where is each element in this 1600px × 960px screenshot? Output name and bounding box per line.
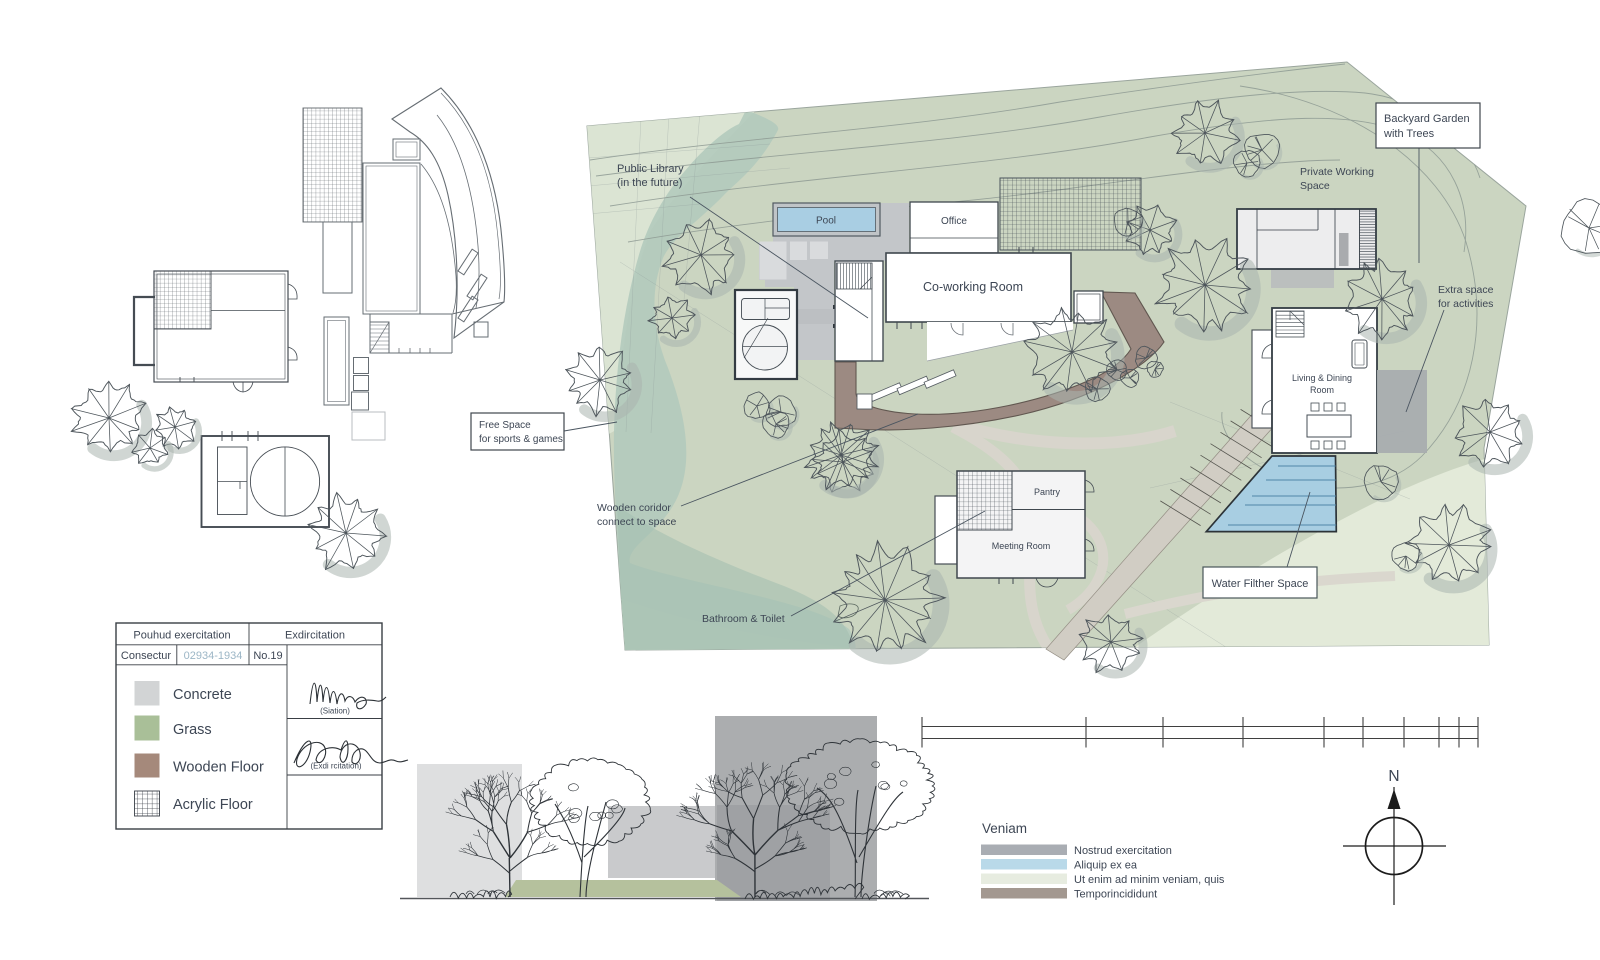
svg-text:Office: Office bbox=[941, 216, 967, 227]
svg-text:N: N bbox=[1388, 768, 1399, 785]
svg-text:Co-working Room: Co-working Room bbox=[923, 280, 1023, 294]
svg-text:Meeting Room: Meeting Room bbox=[992, 541, 1051, 551]
svg-text:Nostrud exercitation: Nostrud exercitation bbox=[1074, 845, 1172, 857]
svg-text:02934-1934: 02934-1934 bbox=[184, 650, 243, 662]
svg-text:No.19: No.19 bbox=[253, 650, 282, 662]
svg-text:Free Space: Free Space bbox=[479, 420, 531, 431]
svg-text:Concrete: Concrete bbox=[173, 687, 232, 703]
svg-text:Aliquip ex ea: Aliquip ex ea bbox=[1074, 860, 1138, 872]
svg-text:Consectur: Consectur bbox=[121, 650, 171, 662]
svg-text:Pouhud exercitation: Pouhud exercitation bbox=[133, 630, 230, 642]
svg-text:Wooden Floor: Wooden Floor bbox=[173, 760, 264, 776]
svg-text:Water Filther Space: Water Filther Space bbox=[1212, 578, 1309, 590]
svg-text:Acrylic Floor: Acrylic Floor bbox=[173, 797, 253, 813]
svg-text:Veniam: Veniam bbox=[982, 821, 1027, 836]
svg-text:Temporincididunt: Temporincididunt bbox=[1074, 889, 1157, 901]
svg-text:(Siation): (Siation) bbox=[320, 707, 350, 716]
svg-text:Backyard Garden: Backyard Garden bbox=[1384, 113, 1470, 125]
svg-text:with Trees: with Trees bbox=[1383, 128, 1435, 140]
svg-text:Room: Room bbox=[1310, 385, 1334, 395]
svg-text:Space: Space bbox=[1300, 180, 1330, 192]
svg-text:Bathroom & Toilet: Bathroom & Toilet bbox=[702, 613, 785, 625]
svg-text:(Exdi rcitation): (Exdi rcitation) bbox=[310, 762, 361, 771]
svg-text:(in the future): (in the future) bbox=[617, 177, 682, 189]
svg-text:Wooden coridor: Wooden coridor bbox=[597, 502, 671, 514]
svg-text:Public Library: Public Library bbox=[617, 163, 684, 175]
svg-text:for sports & games: for sports & games bbox=[479, 434, 563, 445]
svg-text:Grass: Grass bbox=[173, 722, 212, 738]
svg-text:Pool: Pool bbox=[816, 216, 836, 227]
svg-text:for activities: for activities bbox=[1438, 298, 1493, 310]
svg-text:Living & Dining: Living & Dining bbox=[1292, 373, 1352, 383]
svg-text:Pantry: Pantry bbox=[1034, 487, 1061, 497]
svg-text:Private Working: Private Working bbox=[1300, 166, 1374, 178]
svg-text:Extra space: Extra space bbox=[1438, 284, 1494, 296]
svg-text:Ut enim ad minim veniam, quis: Ut enim ad minim veniam, quis bbox=[1074, 874, 1225, 886]
svg-text:Exdircitation: Exdircitation bbox=[285, 630, 345, 642]
svg-text:connect to space: connect to space bbox=[597, 516, 677, 528]
